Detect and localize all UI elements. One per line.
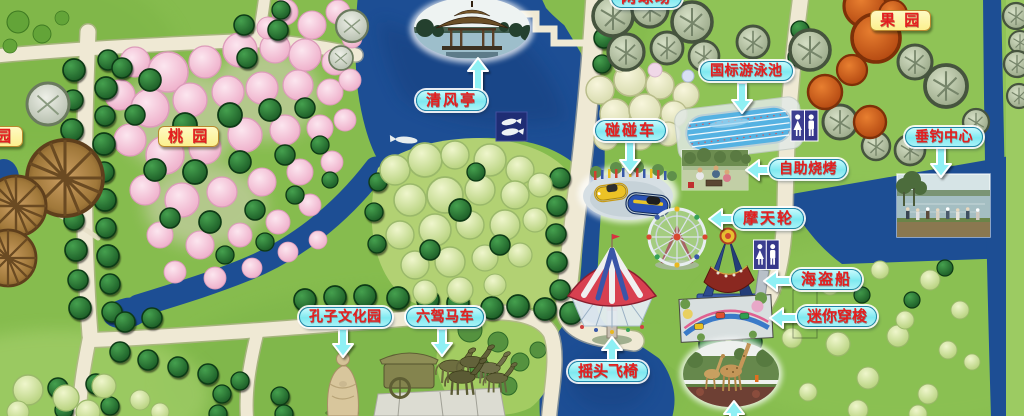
park-map: 桃 园 果 园 园 网球场 清风亭 国标游泳池 碰碰车 自助烧烤 摩天轮 垂钓中… — [0, 0, 1024, 416]
label-orchard: 果 园 — [870, 10, 931, 31]
label-mini-shuttle: 迷你穿梭 — [797, 306, 877, 327]
label-pirate-ship: 海盗船 — [791, 269, 862, 290]
fish-sign-icon — [496, 112, 527, 141]
label-horse-carriage: 六驾马车 — [406, 307, 484, 327]
label-swimming-pool: 国标游泳池 — [700, 61, 793, 81]
mini-shuttle-photo — [679, 292, 773, 343]
label-pavilion: 清风亭 — [416, 90, 487, 111]
restroom-icon-orchard — [791, 110, 818, 141]
giraffe-photo — [680, 338, 782, 410]
label-flying-chairs: 摇头飞椅 — [568, 361, 648, 382]
park-map-graphic — [0, 0, 1024, 416]
label-peach-garden: 桃 园 — [158, 126, 219, 147]
label-bumper-cars: 碰碰车 — [595, 120, 666, 141]
label-bbq: 自助烧烤 — [769, 159, 847, 179]
label-edge-garden-partial: 园 — [0, 126, 23, 147]
restroom-icon-rides — [754, 240, 780, 269]
bbq-photo — [682, 148, 751, 190]
label-fishing-center: 垂钓中心 — [905, 127, 983, 147]
label-tennis-court: 网球场 — [611, 0, 682, 8]
label-ferris-wheel: 摩天轮 — [733, 208, 804, 229]
fishing-photo — [896, 171, 990, 237]
label-confucius-garden: 孔子文化园 — [299, 307, 392, 327]
